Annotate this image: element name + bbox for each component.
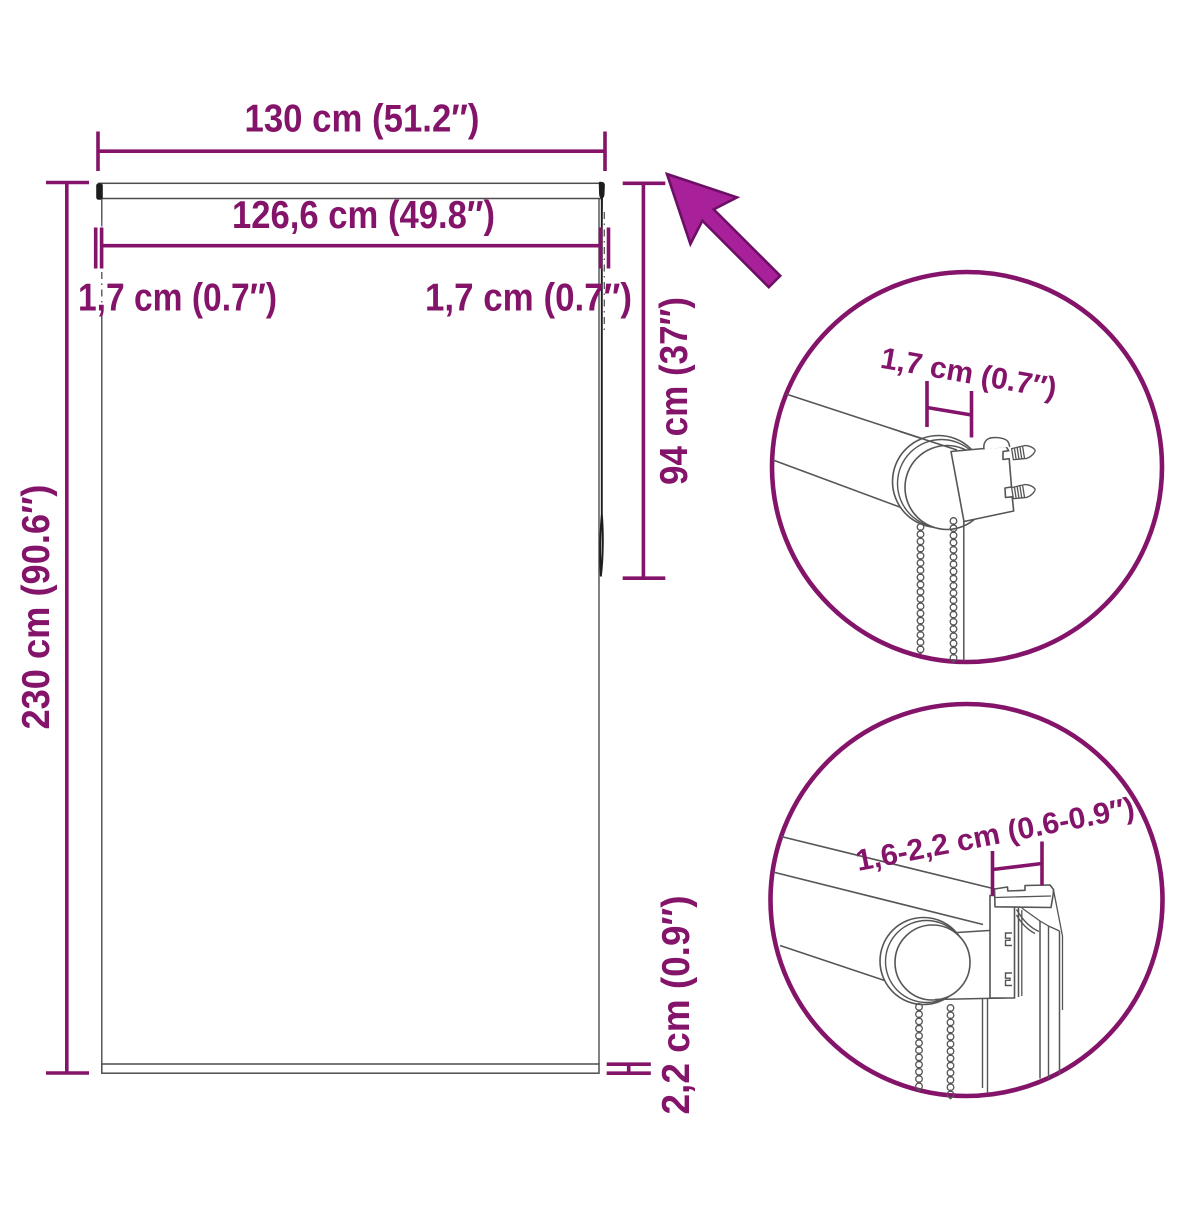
svg-text:2,2 cm (0.9″): 2,2 cm (0.9″) bbox=[655, 896, 698, 1115]
svg-text:130 cm (51.2″): 130 cm (51.2″) bbox=[245, 98, 480, 141]
svg-text:230 cm (90.6″): 230 cm (90.6″) bbox=[15, 485, 58, 730]
svg-text:1,7 cm (0.7″): 1,7 cm (0.7″) bbox=[425, 277, 632, 320]
svg-text:94 cm (37″): 94 cm (37″) bbox=[653, 297, 696, 485]
svg-text:126,6 cm (49.8″): 126,6 cm (49.8″) bbox=[232, 194, 495, 237]
svg-text:1,7 cm (0.7″): 1,7 cm (0.7″) bbox=[78, 277, 277, 320]
